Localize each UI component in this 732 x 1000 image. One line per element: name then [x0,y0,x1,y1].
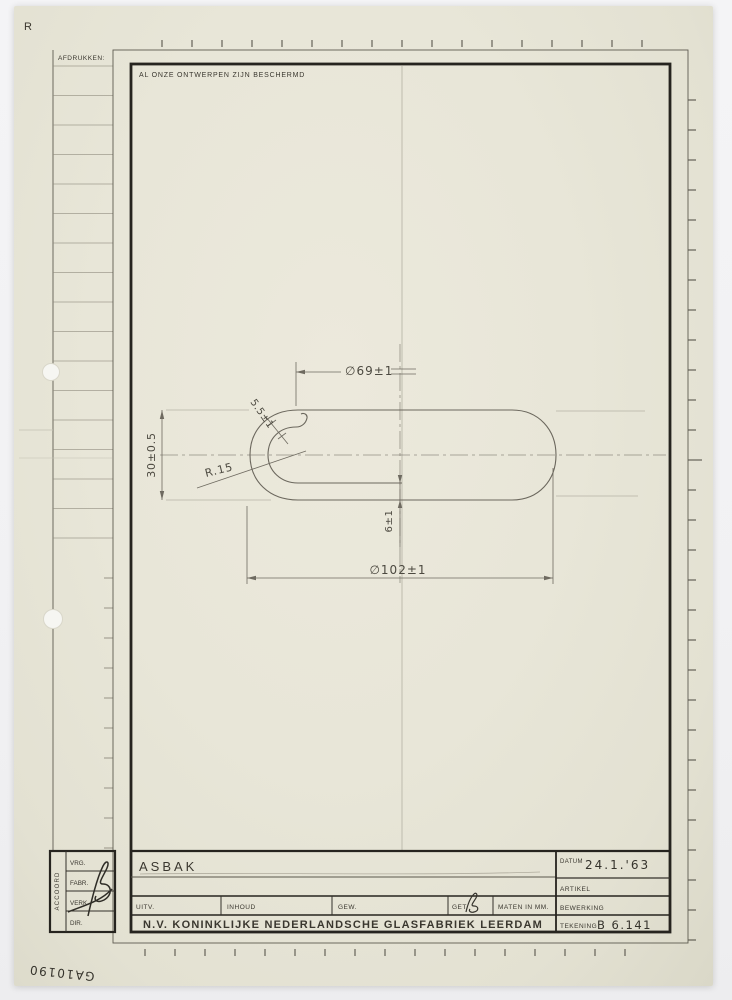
value-tekening: B 6.141 [597,918,652,932]
label-datum: DATUM [560,859,583,865]
drawing-title: ASBAK [139,859,197,874]
dim-overall-height-text: 30±0.5 [145,432,158,478]
approval-row-dir: DIR. [70,920,83,927]
approval-row-fabr: FABR. [70,880,88,887]
value-datum: 24.1.'63 [585,858,650,872]
approval-vertical-label: ACCOORD [55,871,61,910]
punch-hole-top [43,364,60,381]
label-bewerking: BEWERKING [560,905,604,912]
label-inhoud: INHOUD [227,904,256,911]
dim-outer-diameter-text: ∅102±1 [369,563,426,577]
label-maten: MATEN IN MM. [498,904,549,911]
ruler-ticks-bottom [145,949,625,956]
dim-rim-thickness-text: 5.5±1 [248,397,276,430]
archive-code: GA10190 [28,963,95,984]
column-row-lines [53,66,113,538]
technical-drawing-svg: R AFDRUKKEN: AL ONZE ONTWERPEN ZIJN BESC… [0,0,732,1000]
punch-hole-bottom [44,610,63,629]
scan-background: R AFDRUKKEN: AL ONZE ONTWERPEN ZIJN BESC… [0,0,732,1000]
pencil-guide-line [140,872,540,874]
approval-block: ACCOORD VRG. FABR. VERK. DIR. [50,851,115,932]
dim-base-thickness-text: 6±1 [384,510,395,533]
company-name: N.V. KONINKLIJKE NEDERLANDSCHE GLASFABRI… [143,919,543,931]
dim-arrow [544,576,553,580]
dim-arrow [247,576,256,580]
drawing-frame [131,64,670,932]
dim-top-diameter-text: ∅69±1 [345,364,393,378]
approval-signature [68,862,112,916]
dim-arrow [160,491,164,500]
title-block: ASBAK UITV. INHOUD GEW. GET. MATEN IN MM… [131,851,670,932]
corner-stamp: R [24,21,32,33]
dim-arrow [296,370,305,374]
column-ruler-ticks [104,578,113,848]
afdrukken-column: AFDRUKKEN: [53,50,113,851]
dim-base-thickness: 6±1 [384,475,402,547]
approval-row-verk: VERK. [70,900,89,907]
protection-notice: AL ONZE ONTWERPEN ZIJN BESCHERMD [139,72,305,79]
label-gew: GEW. [338,904,357,911]
inner-profile [268,413,402,483]
label-uitv: UITV. [136,904,155,911]
outer-frame [113,50,688,943]
label-tekening: TEKENING [560,923,597,930]
dim-arrow [160,410,164,419]
label-artikel: ARTIKEL [560,886,590,893]
dim-top-diameter: ∅69±1 [296,362,416,406]
fold-creases [19,66,402,850]
column-header: AFDRUKKEN: [58,55,105,62]
ruler-ticks-right [688,100,702,940]
approval-row-vrg: VRG. [70,860,86,867]
ashtray-section-drawing: ∅69±1 30±0.5 5.5±1 R.15 [145,344,666,584]
ruler-ticks-top [162,40,642,47]
